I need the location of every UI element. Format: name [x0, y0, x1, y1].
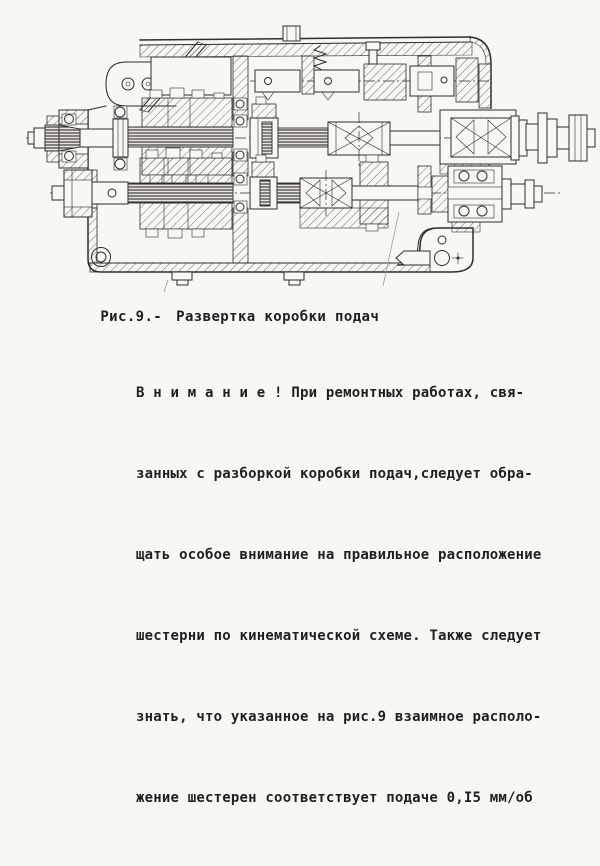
- upper-shaft-assembly: [26, 88, 596, 185]
- note-line: занных с разборкой коробки подач,следует…: [136, 461, 596, 488]
- note-line: В н и м а н и е ! При ремонтных работах,…: [136, 380, 596, 407]
- note-line: щать особое внимание на правильное распо…: [136, 542, 596, 569]
- note-line: знать, что указанное на рис.9 взаимное р…: [136, 704, 596, 731]
- gearbox-sectional-drawing: [0, 0, 600, 300]
- upper-output-coupling: [526, 113, 595, 163]
- shifter-rail-assembly: [234, 58, 490, 110]
- mounting-holes: [92, 236, 464, 285]
- figure-label: Рис.9.-: [100, 309, 162, 325]
- figure-title: Развертка коробки подач: [176, 309, 379, 325]
- scanned-manual-page: Рис.9.-Развертка коробки подач В н и м а…: [0, 0, 600, 497]
- note-line: жение шестерен соответствует подаче 0,I5…: [136, 785, 596, 812]
- note-line: шестерни по кинематической схеме. Также …: [136, 623, 596, 650]
- attention-note: В н и м а н и е ! При ремонтных работах,…: [136, 326, 596, 866]
